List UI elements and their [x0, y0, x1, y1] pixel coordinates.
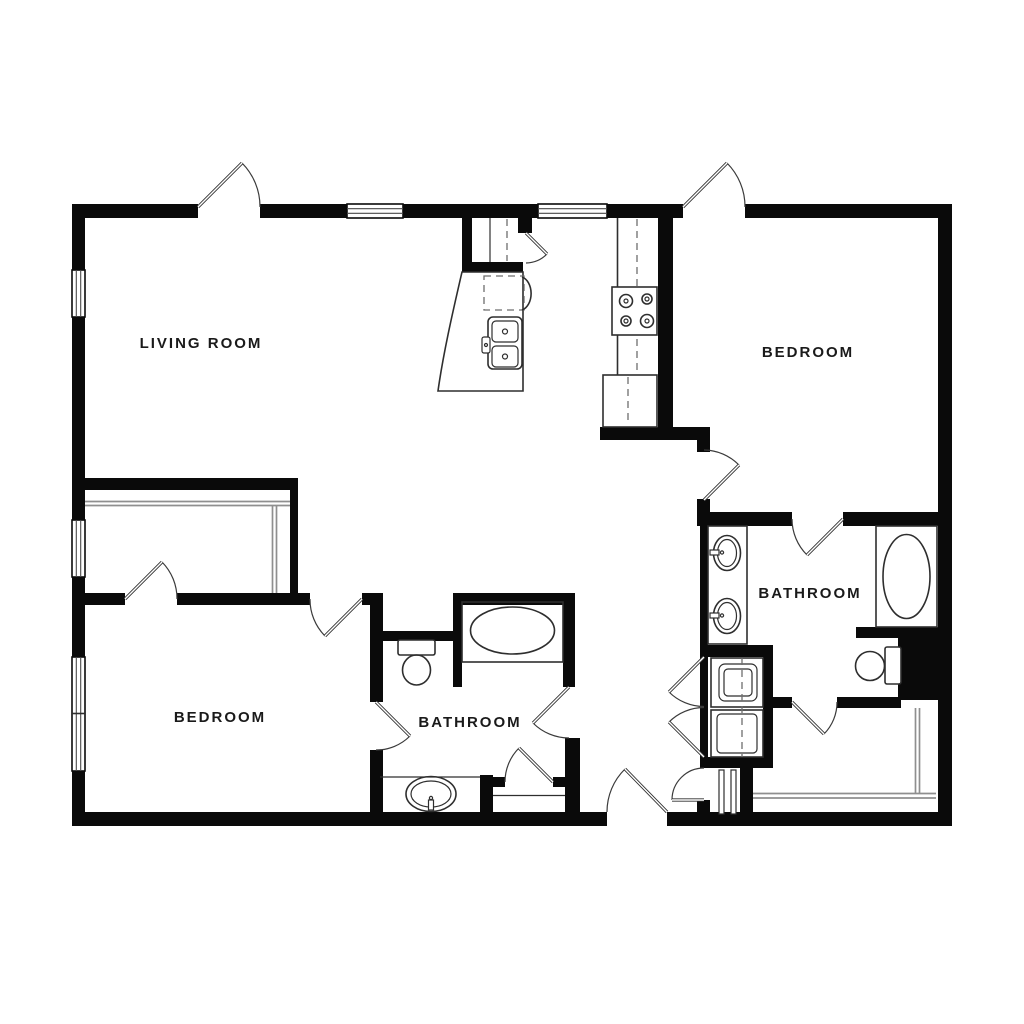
dishwasher [484, 276, 524, 310]
stove-burner-center [624, 299, 628, 303]
sink-faucet-dot [720, 551, 723, 554]
door-hall-small-arc [672, 768, 704, 800]
wall-bathroom2-bottom [773, 697, 792, 708]
exterior-walls [72, 204, 952, 826]
wall-left [72, 577, 85, 657]
door-entry-leaf [198, 163, 242, 207]
sink-drain [503, 329, 508, 334]
sink-faucet-dot [720, 614, 723, 617]
window-left-2 [72, 520, 85, 577]
floor-plan-drawing: LIVING ROOM BEDROOM BEDROOM BATHROOM BAT… [0, 0, 1024, 1024]
window-top-2 [538, 204, 607, 218]
laundry-closet [711, 658, 763, 757]
door-bedroom1-top-arc [727, 163, 745, 207]
label-living-room: LIVING ROOM [140, 335, 263, 352]
wall-bedroom1-bottom [697, 512, 792, 526]
wall-bottom [72, 812, 607, 826]
wall-bedroom1-bottom [843, 512, 938, 526]
wall-laundry-bottom [700, 757, 773, 768]
wall-linen-top [553, 777, 580, 787]
wall-pantry-jamb [518, 212, 532, 233]
toilet-bowl [403, 655, 431, 685]
sink-drain [503, 354, 508, 359]
label-bathroom-right: BATHROOM [758, 585, 861, 602]
wall-kitchen-bedroom1 [658, 212, 673, 427]
sink-faucet [710, 613, 719, 618]
stove-burner-center [645, 297, 649, 301]
door-bathroom1-east-leaf [533, 687, 569, 723]
sink-faucet [429, 800, 434, 810]
toilet-bowl [856, 652, 885, 681]
wall-tub-top [453, 593, 575, 605]
wall-closet-right [290, 478, 298, 599]
dryer-door [717, 714, 757, 753]
door-bathroom1-west-arc [376, 736, 410, 750]
stove-burner-center [624, 319, 628, 323]
washer-door-inner [724, 669, 752, 696]
bathtub [462, 602, 563, 662]
door-linen-leaf [519, 748, 553, 782]
wall-bathroom2-left [700, 514, 708, 768]
window-top-1 [347, 204, 403, 218]
door-closetroom-arc [824, 702, 837, 734]
door-pantry-leaf [526, 233, 547, 254]
door-closetroom-leaf [792, 702, 824, 734]
door-laundry-leaf [669, 722, 704, 757]
wall-laundry-right [763, 645, 773, 768]
door-laundry-arc [669, 692, 704, 707]
door-bottom-exterior-leaf [625, 769, 667, 812]
wall-top [260, 204, 347, 218]
wall-linen-left [480, 775, 493, 820]
window-left-1 [72, 270, 85, 317]
toilet-tank [885, 647, 901, 684]
door-bathroom2-arc [792, 519, 807, 555]
wall-laundry-top [700, 645, 773, 657]
partition-thin-wall [719, 770, 724, 814]
floor-plan: LIVING ROOM BEDROOM BEDROOM BATHROOM BAT… [0, 0, 1024, 1024]
door-closet-leaf [125, 562, 162, 599]
bathtub-basin [471, 607, 555, 654]
door-bedroom1-hall-leaf [704, 465, 739, 500]
sink-faucet [710, 550, 719, 555]
wall-under-tub2 [856, 627, 938, 638]
kitchen-faucet-dot [485, 344, 488, 347]
bathtub [876, 526, 937, 627]
door-pantry-arc [526, 254, 547, 263]
label-bathroom-middle: BATHROOM [418, 714, 521, 731]
door-bathroom2-leaf [807, 519, 843, 555]
door-bedroom1-hall-arc [704, 450, 739, 465]
door-laundry-leaf [669, 657, 704, 692]
door-entry-arc [242, 163, 260, 207]
wall-bathroom2-bottom [837, 697, 901, 708]
wall-closetroom-left [740, 768, 753, 818]
stove-burner-center [645, 319, 649, 323]
wall-top [72, 204, 198, 218]
wall-bedroom2-right [370, 593, 383, 702]
door-bedroom2-arc [310, 599, 325, 636]
wall-pantry-bottom [462, 262, 523, 272]
bathtub-basin [883, 535, 930, 619]
wall-bottom [667, 812, 952, 826]
door-closet-arc [162, 562, 177, 599]
partition-thin-wall [731, 770, 736, 814]
closet-shelving [85, 502, 936, 815]
wall-tub-left [453, 593, 462, 687]
sink-faucet-dot [429, 796, 432, 799]
wall-right [938, 204, 952, 826]
refrigerator [603, 375, 657, 427]
wall-bedroom2-right [370, 750, 383, 820]
door-bedroom2-leaf [325, 599, 362, 636]
wall-left [72, 204, 85, 270]
door-laundry-arc [669, 708, 704, 723]
door-bathroom1-east-arc [533, 723, 569, 738]
wall-bedroom2-top [177, 593, 310, 605]
wall-tub-right [563, 593, 575, 687]
label-bedroom-bottom-left: BEDROOM [174, 709, 266, 726]
wall-linen-top [493, 777, 505, 787]
door-bottom-exterior-arc [607, 769, 625, 812]
toilet-tank [398, 640, 435, 655]
door-bedroom1-top-leaf [683, 163, 727, 207]
label-bedroom-top-right: BEDROOM [762, 344, 854, 361]
door-linen-arc [505, 748, 519, 782]
wall-top [745, 204, 952, 218]
wall-kitchen-bottom [600, 427, 710, 440]
wall-bedroom2-top [72, 593, 125, 605]
door-bathroom1-west-leaf [376, 702, 410, 736]
wall-hall-door-jamb [697, 800, 710, 814]
wall-plumbing-mass [898, 638, 938, 700]
wall-livingroom-closet [72, 478, 298, 490]
